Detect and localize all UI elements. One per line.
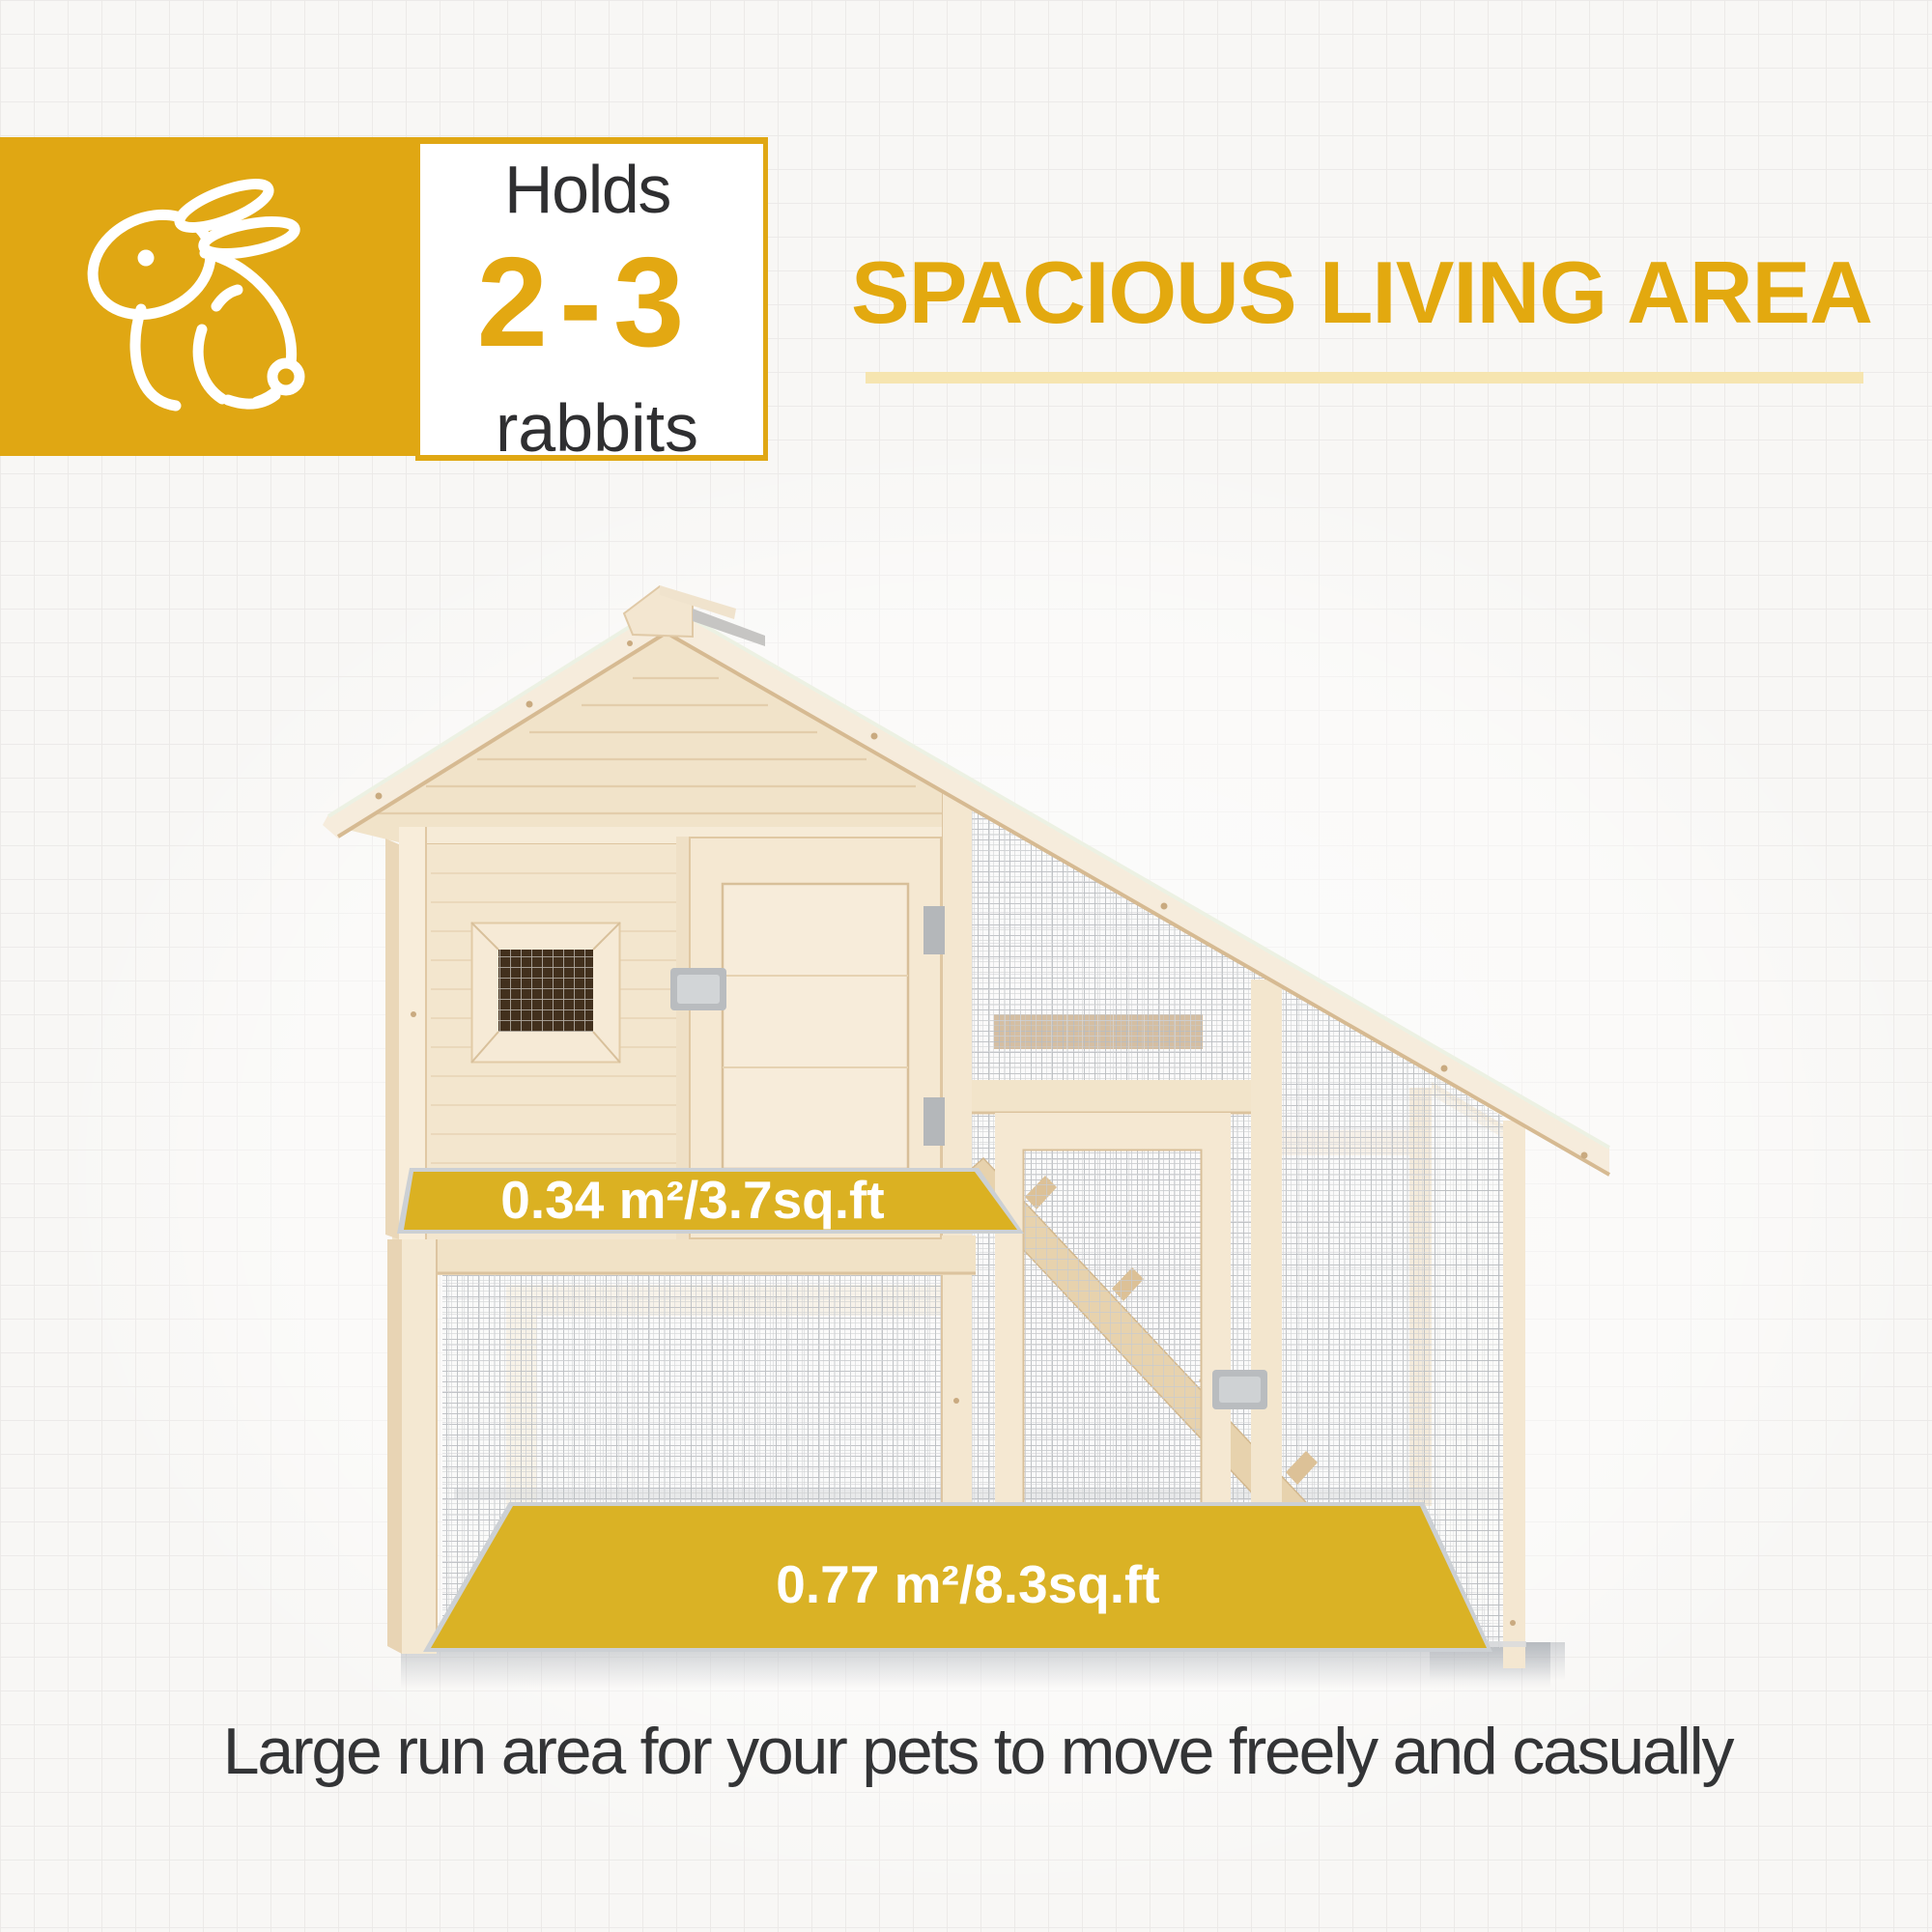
svg-text:SPACIOUS LIVING AREA: SPACIOUS LIVING AREA (851, 244, 1872, 342)
svg-text:2-3: 2-3 (477, 231, 696, 373)
svg-text:Large run area for your pets t: Large run area for your pets to move fre… (223, 1715, 1735, 1788)
svg-text:Holds: Holds (504, 152, 670, 227)
svg-text:0.34 m²/3.7sq.ft: 0.34 m²/3.7sq.ft (500, 1170, 884, 1230)
svg-text:rabbits: rabbits (496, 390, 698, 466)
svg-text:0.77 m²/8.3sq.ft: 0.77 m²/8.3sq.ft (776, 1554, 1159, 1614)
